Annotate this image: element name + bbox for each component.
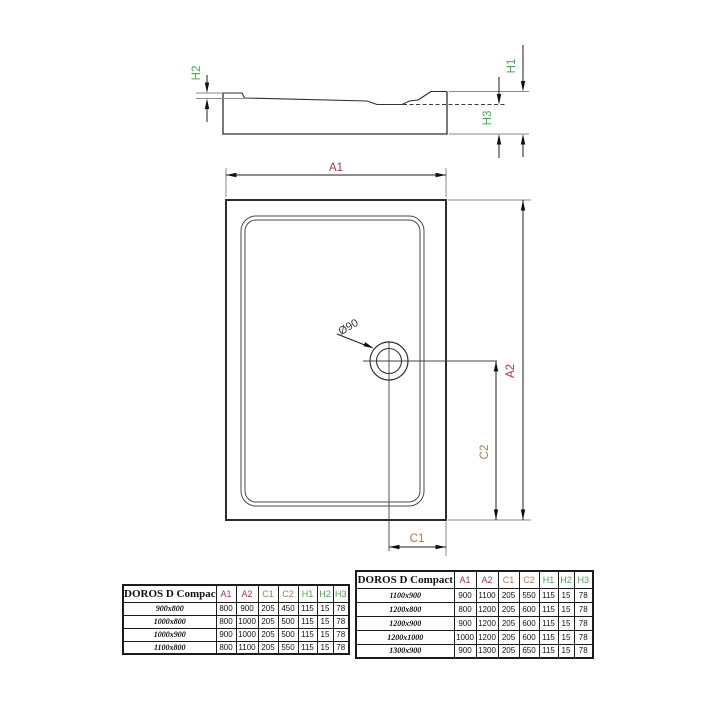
value-cell: 15 [317,628,333,641]
section-view: H2 H1 H3 [191,45,529,158]
table-header-row: DOROS D CompactA1A2C1C2H1H2H3 [123,585,349,602]
arrowhead-icon [226,173,237,177]
spec-table: DOROS D CompactA1A2C1C2H1H2H3900x8008009… [122,584,350,655]
arrowhead-icon [494,361,498,372]
dimension-c2: C2 [479,361,498,520]
value-cell: 15 [558,644,574,658]
value-cell: 900 [454,644,476,658]
dimension-a1: A1 [226,162,446,197]
model-cell: 1000x900 [123,628,216,641]
value-cell: 650 [519,644,539,658]
model-cell: 1200x1000 [356,630,454,644]
value-cell: 78 [574,644,593,658]
table-row: 900x8008009002054501151578 [123,602,349,615]
plan-tray-outer-edge [226,200,446,520]
value-cell: 115 [298,602,317,615]
value-cell: 78 [333,602,349,615]
value-cell: 1100 [236,641,258,654]
model-cell: 1200x800 [356,602,454,616]
value-cell: 1000 [236,615,258,628]
value-cell: 550 [278,641,298,654]
model-cell: 1000x800 [123,615,216,628]
section-tray-profile [223,92,447,105]
column-header-c1: C1 [498,571,519,588]
arrowhead-icon [521,134,525,145]
arrowhead-icon [205,99,209,110]
value-cell: 78 [574,602,593,616]
value-cell: 1300 [476,644,498,658]
dimension-h3: H3 [482,77,501,158]
arrowhead-icon [494,510,498,521]
arrowhead-icon [436,173,447,177]
arrowhead-icon [521,200,525,211]
arrowhead-icon [364,342,375,348]
value-cell: 78 [574,588,593,602]
table-title: DOROS D Compact [356,571,454,588]
value-cell: 205 [258,628,278,641]
value-cell: 115 [539,630,558,644]
column-header-c1: C1 [258,585,278,602]
column-header-c2: C2 [278,585,298,602]
value-cell: 800 [454,602,476,616]
value-cell: 800 [216,641,236,654]
value-cell: 115 [298,628,317,641]
h2-label: H2 [191,66,203,81]
value-cell: 550 [519,588,539,602]
value-cell: 1000 [454,630,476,644]
dimension-a2: A2 [448,200,531,520]
model-cell: 1300x900 [356,644,454,658]
model-cell: 1100x800 [123,641,216,654]
value-cell: 205 [498,602,519,616]
value-cell: 205 [498,616,519,630]
c2-label: C2 [479,445,491,460]
column-header-h2: H2 [558,571,574,588]
value-cell: 1200 [476,616,498,630]
spec-table-right: DOROS D CompactA1A2C1C2H1H2H31100x900900… [355,570,592,659]
table-header-row: DOROS D CompactA1A2C1C2H1H2H3 [356,571,593,588]
value-cell: 78 [333,615,349,628]
shower-tray-technical-drawing: H2 H1 H3 [0,0,720,720]
table-row: 1200x90090012002056001151578 [356,616,593,630]
value-cell: 205 [498,630,519,644]
value-cell: 1200 [476,630,498,644]
table-row: 1000x90090010002055001151578 [123,628,349,641]
value-cell: 205 [498,644,519,658]
table-row: 1000x80080010002055001151578 [123,615,349,628]
column-header-a1: A1 [216,585,236,602]
value-cell: 1000 [236,628,258,641]
value-cell: 78 [333,641,349,654]
column-header-c2: C2 [519,571,539,588]
dimension-h2: H2 [191,66,209,122]
value-cell: 15 [558,630,574,644]
arrowhead-icon [521,510,525,521]
value-cell: 78 [574,630,593,644]
dimension-c1: C1 [389,522,446,556]
value-cell: 115 [298,615,317,628]
value-cell: 15 [558,602,574,616]
value-cell: 500 [278,628,298,641]
column-header-h1: H1 [298,585,317,602]
a2-label: A2 [505,364,517,378]
value-cell: 205 [258,641,278,654]
h3-label: H3 [482,111,494,126]
value-cell: 500 [278,615,298,628]
drain-diameter-label: Ø90 [336,317,360,338]
value-cell: 115 [539,602,558,616]
table-row: 1200x80080012002056001151578 [356,602,593,616]
table-title: DOROS D Compact [123,585,216,602]
value-cell: 600 [519,602,539,616]
value-cell: 600 [519,630,539,644]
a1-label: A1 [329,162,343,174]
value-cell: 900 [216,628,236,641]
value-cell: 1200 [476,602,498,616]
column-header-h3: H3 [333,585,349,602]
arrowhead-icon [497,134,501,145]
column-header-a2: A2 [476,571,498,588]
arrowhead-icon [205,83,209,94]
value-cell: 205 [498,588,519,602]
value-cell: 115 [298,641,317,654]
column-header-h2: H2 [317,585,333,602]
value-cell: 800 [216,615,236,628]
model-cell: 900x800 [123,602,216,615]
table-row: 1100x90090011002055501151578 [356,588,593,602]
arrowhead-icon [389,545,400,549]
value-cell: 115 [539,644,558,658]
spec-table: DOROS D CompactA1A2C1C2H1H2H31100x900900… [355,570,594,659]
drain-diameter-callout: Ø90 [336,317,374,348]
table-row: 1100x80080011002055501151578 [123,641,349,654]
value-cell: 205 [258,615,278,628]
value-cell: 900 [454,588,476,602]
value-cell: 15 [317,641,333,654]
table-row: 1200x1000100012002056001151578 [356,630,593,644]
value-cell: 115 [539,588,558,602]
dimension-h1: H1 [506,45,525,157]
model-cell: 1200x900 [356,616,454,630]
spec-table-left: DOROS D CompactA1A2C1C2H1H2H3900x8008009… [122,584,348,655]
model-cell: 1100x900 [356,588,454,602]
value-cell: 115 [539,616,558,630]
value-cell: 15 [558,616,574,630]
value-cell: 78 [333,628,349,641]
value-cell: 450 [278,602,298,615]
c1-label: C1 [410,533,425,545]
plan-view: Ø90 A1 A2 C2 [226,162,531,556]
value-cell: 205 [258,602,278,615]
h1-label: H1 [506,59,518,74]
value-cell: 15 [558,588,574,602]
arrowhead-icon [521,81,525,92]
value-cell: 600 [519,616,539,630]
column-header-h1: H1 [539,571,558,588]
value-cell: 800 [216,602,236,615]
value-cell: 78 [574,616,593,630]
value-cell: 15 [317,615,333,628]
arrowhead-icon [497,94,501,105]
value-cell: 900 [236,602,258,615]
column-header-h3: H3 [574,571,593,588]
table-row: 1300x90090013002056501151578 [356,644,593,658]
column-header-a1: A1 [454,571,476,588]
value-cell: 1100 [476,588,498,602]
arrowhead-icon [436,545,447,549]
value-cell: 900 [454,616,476,630]
value-cell: 15 [317,602,333,615]
column-header-a2: A2 [236,585,258,602]
